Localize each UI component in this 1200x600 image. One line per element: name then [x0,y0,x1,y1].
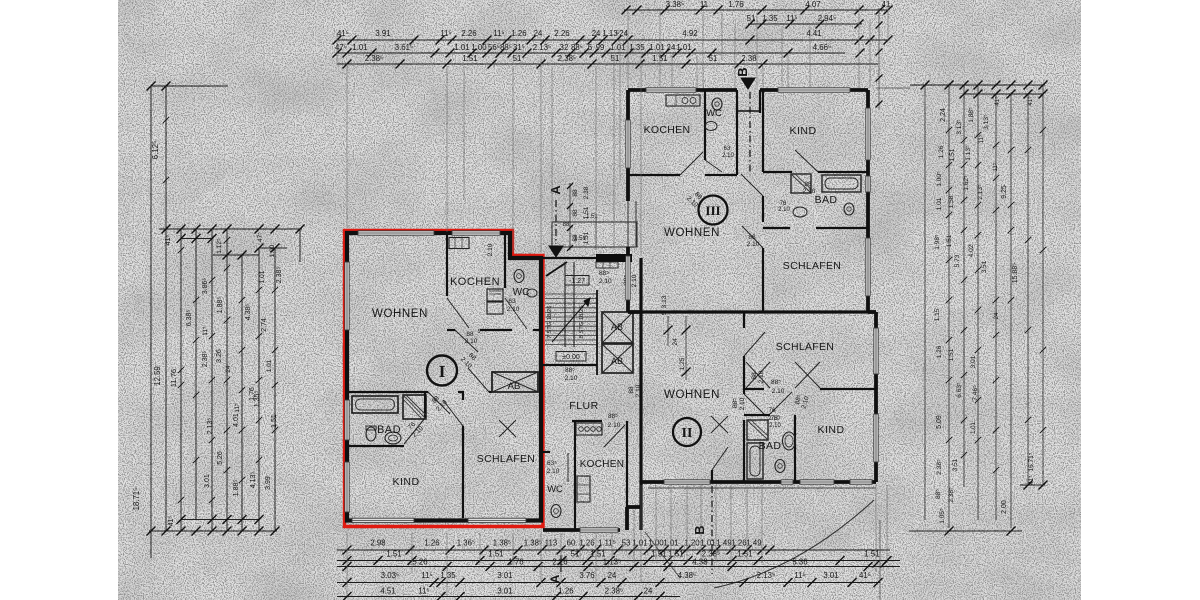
svg-text:1.51: 1.51 [946,234,953,247]
svg-text:1.51: 1.51 [488,550,503,559]
svg-text:1.26: 1.26 [731,539,746,548]
svg-text:18.71⁵: 18.71⁵ [132,488,141,511]
svg-text:2.38⁵: 2.38⁵ [276,267,283,284]
svg-text:1.26: 1.26 [558,587,573,596]
svg-text:2.13⁵: 2.13⁵ [207,418,214,435]
svg-text:76: 76 [769,408,776,414]
svg-text:SCHLAFEN: SCHLAFEN [477,453,535,465]
svg-text:24: 24 [672,338,679,346]
svg-text:32: 32 [560,43,569,52]
svg-text:41⁵: 41⁵ [165,235,172,246]
svg-text:11⁵: 11⁵ [234,403,241,413]
svg-text:2.10: 2.10 [547,468,560,475]
svg-text:41⁵: 41⁵ [859,571,871,580]
svg-text:WOHNEN: WOHNEN [372,308,428,320]
svg-text:2.10: 2.10 [778,207,790,213]
svg-text:1.25: 1.25 [679,357,686,370]
svg-text:24: 24 [644,587,653,596]
svg-text:1.15: 1.15 [934,308,941,321]
svg-text:88⁵: 88⁵ [565,367,575,374]
svg-text:1.88⁵: 1.88⁵ [233,480,240,497]
svg-text:12.59: 12.59 [153,366,162,386]
svg-text:11⁵: 11⁵ [493,29,504,38]
svg-text:SCHLAFEN: SCHLAFEN [776,341,834,353]
svg-text:1.00⁵: 1.00⁵ [936,171,943,187]
svg-text:2.10: 2.10 [722,153,734,159]
svg-text:7 STG 18/26: 7 STG 18/26 [547,306,553,339]
svg-text:2.10: 2.10 [739,397,746,410]
svg-text:2.38: 2.38 [583,186,590,199]
svg-text:FLUR: FLUR [569,400,598,412]
svg-text:2.10: 2.10 [758,370,765,383]
svg-text:1.51: 1.51 [737,550,752,559]
svg-text:2.10: 2.10 [631,274,638,287]
svg-text:88: 88 [572,209,579,217]
svg-text:6.12⁵: 6.12⁵ [151,141,160,159]
svg-text:88⁵: 88⁵ [608,413,618,420]
svg-text:2.38⁵: 2.38⁵ [936,459,943,475]
svg-text:11⁵: 11⁵ [421,571,432,580]
svg-text:1.58: 1.58 [948,195,955,208]
svg-text:2.38⁵: 2.38⁵ [365,54,383,63]
svg-text:3.01: 3.01 [497,587,512,596]
svg-text:3.76: 3.76 [579,571,594,580]
svg-text:III: III [705,203,720,218]
svg-text:4.01: 4.01 [233,413,240,427]
svg-text:1.76: 1.76 [508,558,523,567]
svg-text:WC: WC [706,108,722,119]
svg-text:88: 88 [628,386,635,394]
svg-text:1.01: 1.01 [700,539,715,548]
svg-text:1.26: 1.26 [938,145,945,158]
svg-text:5.36: 5.36 [792,558,807,567]
svg-text:2.10: 2.10 [565,375,578,382]
svg-text:4.51: 4.51 [380,587,395,596]
svg-text:51: 51 [747,14,756,23]
svg-text:WC: WC [513,287,530,298]
svg-text:2.38⁵: 2.38⁵ [948,487,955,503]
svg-text:1.36⁵: 1.36⁵ [457,539,475,548]
svg-text:WC: WC [547,484,563,495]
svg-text:2.26: 2.26 [554,29,569,38]
svg-text:2.10: 2.10 [635,384,642,397]
svg-text:B: B [735,67,750,76]
svg-text:KIND: KIND [392,476,419,488]
svg-text:16.71⁵: 16.71⁵ [1028,452,1035,471]
svg-text:2.26: 2.26 [461,29,476,38]
svg-text:1.49: 1.49 [716,539,731,548]
svg-text:3.13: 3.13 [661,295,668,308]
svg-text:1.49: 1.49 [746,539,761,548]
svg-text:A: A [548,574,562,583]
svg-text:41⁵: 41⁵ [168,516,175,527]
svg-text:B: B [692,525,707,534]
svg-text:3.51: 3.51 [952,458,959,471]
svg-text:1.01: 1.01 [936,197,943,210]
svg-text:88⁵: 88⁵ [935,489,942,499]
svg-text:11.76: 11.76 [169,369,178,387]
svg-text:8 STG 18/25: 8 STG 18/25 [579,306,585,339]
svg-text:BAD: BAD [815,194,838,206]
svg-text:1.98⁵: 1.98⁵ [934,234,941,250]
svg-text:4.41: 4.41 [806,29,821,38]
svg-text:88: 88 [748,234,756,241]
svg-text:41⁵: 41⁵ [994,96,1001,106]
svg-text:88: 88 [466,331,474,338]
svg-text:88: 88 [563,222,570,228]
svg-text:KOCHEN: KOCHEN [450,276,500,288]
svg-text:51: 51 [611,54,620,63]
svg-text:15.88⁵: 15.88⁵ [1012,263,1019,284]
svg-text:11⁵: 11⁵ [794,571,805,580]
svg-text:1.05⁵: 1.05⁵ [939,508,946,524]
svg-text:60: 60 [567,539,576,548]
svg-text:41⁵: 41⁵ [1028,475,1035,485]
svg-text:I: I [439,362,446,381]
svg-text:KOCHEN: KOCHEN [580,459,625,470]
svg-text:2.98: 2.98 [370,539,385,548]
svg-text:4.92: 4.92 [682,29,697,38]
svg-text:51: 51 [513,54,522,63]
svg-text:2.10: 2.10 [772,388,785,395]
svg-text:KIND: KIND [789,125,816,137]
svg-text:2.94⁵: 2.94⁵ [818,14,836,23]
svg-text:88⁵: 88⁵ [771,379,781,386]
svg-text:1.00: 1.00 [648,539,664,548]
svg-text:6.63⁵: 6.63⁵ [956,382,963,398]
svg-text:AB: AB [611,356,623,366]
svg-text:2.10: 2.10 [747,241,760,248]
svg-text:3.99: 3.99 [265,476,272,490]
svg-text:11⁵: 11⁵ [202,326,209,336]
svg-text:2.10: 2.10 [608,422,621,429]
svg-text:88: 88 [572,189,579,197]
svg-text:4.38⁵: 4.38⁵ [678,571,696,580]
svg-text:76: 76 [771,416,778,422]
svg-text:1.01: 1.01 [610,43,625,52]
svg-text:2.38: 2.38 [741,54,756,63]
svg-text:1.01: 1.01 [649,43,664,52]
svg-text:63⁵: 63⁵ [547,460,557,467]
svg-text:24: 24 [225,365,232,373]
svg-text:1.51: 1.51 [574,236,586,242]
svg-text:5.26: 5.26 [412,558,427,567]
svg-text:11⁵: 11⁵ [440,29,451,38]
svg-text:1.13⁵: 1.13⁵ [965,145,972,161]
svg-text:1.51: 1.51 [462,54,477,63]
svg-text:1.00: 1.00 [269,244,276,257]
svg-text:5.73: 5.73 [954,254,961,267]
svg-text:4.13⁵: 4.13⁵ [250,472,257,489]
svg-text:3.61⁵: 3.61⁵ [395,43,413,52]
svg-text:3.13⁵: 3.13⁵ [956,119,963,135]
svg-text:2.38⁵: 2.38⁵ [202,351,209,368]
svg-text:AB: AB [611,322,623,332]
svg-text:1.26: 1.26 [511,29,526,38]
svg-text:2.10: 2.10 [465,338,478,345]
svg-text:1.35⁵: 1.35⁵ [254,391,261,408]
svg-text:2.10: 2.10 [487,243,494,256]
svg-text:41⁵: 41⁵ [1027,96,1034,106]
svg-text:WOHNEN: WOHNEN [664,389,720,401]
svg-text:1.51: 1.51 [864,550,879,559]
svg-text:1.76: 1.76 [728,0,743,9]
svg-text:2.74: 2.74 [261,318,268,332]
svg-text:1.12⁵: 1.12⁵ [216,238,223,254]
svg-text:2.13⁵: 2.13⁵ [757,571,775,580]
svg-text:3.01: 3.01 [204,474,211,488]
svg-text:47⁵: 47⁵ [257,232,264,242]
svg-text:63: 63 [508,298,516,305]
svg-text:24: 24 [994,312,1000,319]
svg-text:1.62⁵: 1.62⁵ [963,175,970,191]
svg-text:1.01: 1.01 [454,43,469,52]
svg-text:A: A [548,185,563,195]
svg-text:2.38⁵: 2.38⁵ [605,587,623,596]
svg-text:3.38⁵: 3.38⁵ [666,0,684,9]
svg-text:11: 11 [700,0,708,9]
svg-text:11⁵: 11⁵ [992,162,999,171]
svg-text:88⁵: 88⁵ [732,398,739,408]
svg-text:2.24: 2.24 [940,108,947,122]
svg-text:51: 51 [571,550,580,559]
svg-text:2.10: 2.10 [507,306,520,313]
svg-text:3.13⁵: 3.13⁵ [983,114,990,130]
svg-text:7.46⁵: 7.46⁵ [972,385,979,401]
svg-text:2.00: 2.00 [1001,500,1008,514]
svg-text:2.13⁵: 2.13⁵ [533,43,551,52]
svg-text:BAD: BAD [759,440,782,452]
svg-text:3.01: 3.01 [823,571,838,580]
svg-text:63: 63 [724,146,731,152]
svg-text:AB: AB [508,381,521,392]
svg-text:53: 53 [622,539,631,548]
svg-text:1.26: 1.26 [424,539,439,548]
svg-text:1.51: 1.51 [651,550,666,559]
svg-text:2.10: 2.10 [803,188,816,195]
svg-text:88: 88 [751,372,758,380]
svg-text:1.38⁵: 1.38⁵ [493,539,511,548]
svg-text:5: 5 [662,312,668,315]
svg-text:88: 88 [804,181,812,188]
svg-text:-1.27: -1.27 [569,278,585,285]
svg-text:51: 51 [709,54,718,63]
svg-text:1.51: 1.51 [949,148,956,161]
svg-text:4.38⁵: 4.38⁵ [245,304,252,321]
svg-text:2.13⁵: 2.13⁵ [977,184,984,200]
svg-text:11⁵: 11⁵ [418,587,429,596]
svg-text:1.51: 1.51 [948,348,955,361]
svg-text:1.51: 1.51 [586,214,598,220]
svg-text:3.91: 3.91 [375,29,390,38]
svg-text:9.25: 9.25 [1001,185,1008,199]
svg-text:5.09: 5.09 [936,415,943,429]
svg-text:3.01: 3.01 [497,571,512,580]
svg-text:1.88⁵: 1.88⁵ [968,107,975,123]
svg-text:6: 6 [588,43,592,52]
svg-text:1.88⁵: 1.88⁵ [217,297,224,314]
svg-text:WOHNEN: WOHNEN [664,227,720,239]
svg-text:4.66⁵: 4.66⁵ [813,43,831,52]
svg-text:2.10: 2.10 [599,278,612,285]
svg-text:1.26: 1.26 [579,539,594,548]
svg-text:1.51: 1.51 [271,414,278,428]
svg-text:1.01: 1.01 [632,539,647,548]
svg-text:11⁵: 11⁵ [978,134,985,143]
svg-text:1.51: 1.51 [386,550,401,559]
svg-text:2.26: 2.26 [552,558,567,567]
svg-text:3.26: 3.26 [216,349,223,363]
svg-text:6.38⁵: 6.38⁵ [186,310,193,327]
svg-text:1.01: 1.01 [266,359,273,372]
svg-text:4.02: 4.02 [968,244,975,257]
svg-text:2.38⁵: 2.38⁵ [558,54,576,63]
svg-text:3.03⁵: 3.03⁵ [381,571,399,580]
svg-text:⁵24: ⁵24 [616,29,629,38]
svg-text:2.10: 2.10 [769,423,781,429]
svg-text:1.01: 1.01 [971,422,977,434]
svg-text:1.01: 1.01 [352,43,367,52]
svg-text:3.86⁵: 3.86⁵ [202,278,209,295]
svg-text:KIND: KIND [817,424,844,436]
svg-text:3.51: 3.51 [981,260,988,273]
svg-text:1.26: 1.26 [936,345,943,358]
svg-text:5.26: 5.26 [217,451,224,465]
svg-text:BAD: BAD [377,424,401,436]
svg-text:II: II [682,426,693,441]
svg-text:1.01: 1.01 [259,270,266,283]
svg-text:24: 24 [608,571,617,580]
svg-text:5: 5 [478,329,481,335]
svg-text:4.38: 4.38 [692,558,707,567]
svg-text:KOCHEN: KOCHEN [644,124,691,136]
svg-text:SCHLAFEN: SCHLAFEN [783,260,841,272]
svg-text:41⁵: 41⁵ [337,29,349,38]
svg-text:1.38⁵: 1.38⁵ [524,539,542,548]
svg-text:88⁵: 88⁵ [599,270,609,277]
svg-text:3.01: 3.01 [970,355,977,368]
svg-text:1.35: 1.35 [440,571,456,580]
svg-text:±0.00: ±0.00 [562,354,580,361]
